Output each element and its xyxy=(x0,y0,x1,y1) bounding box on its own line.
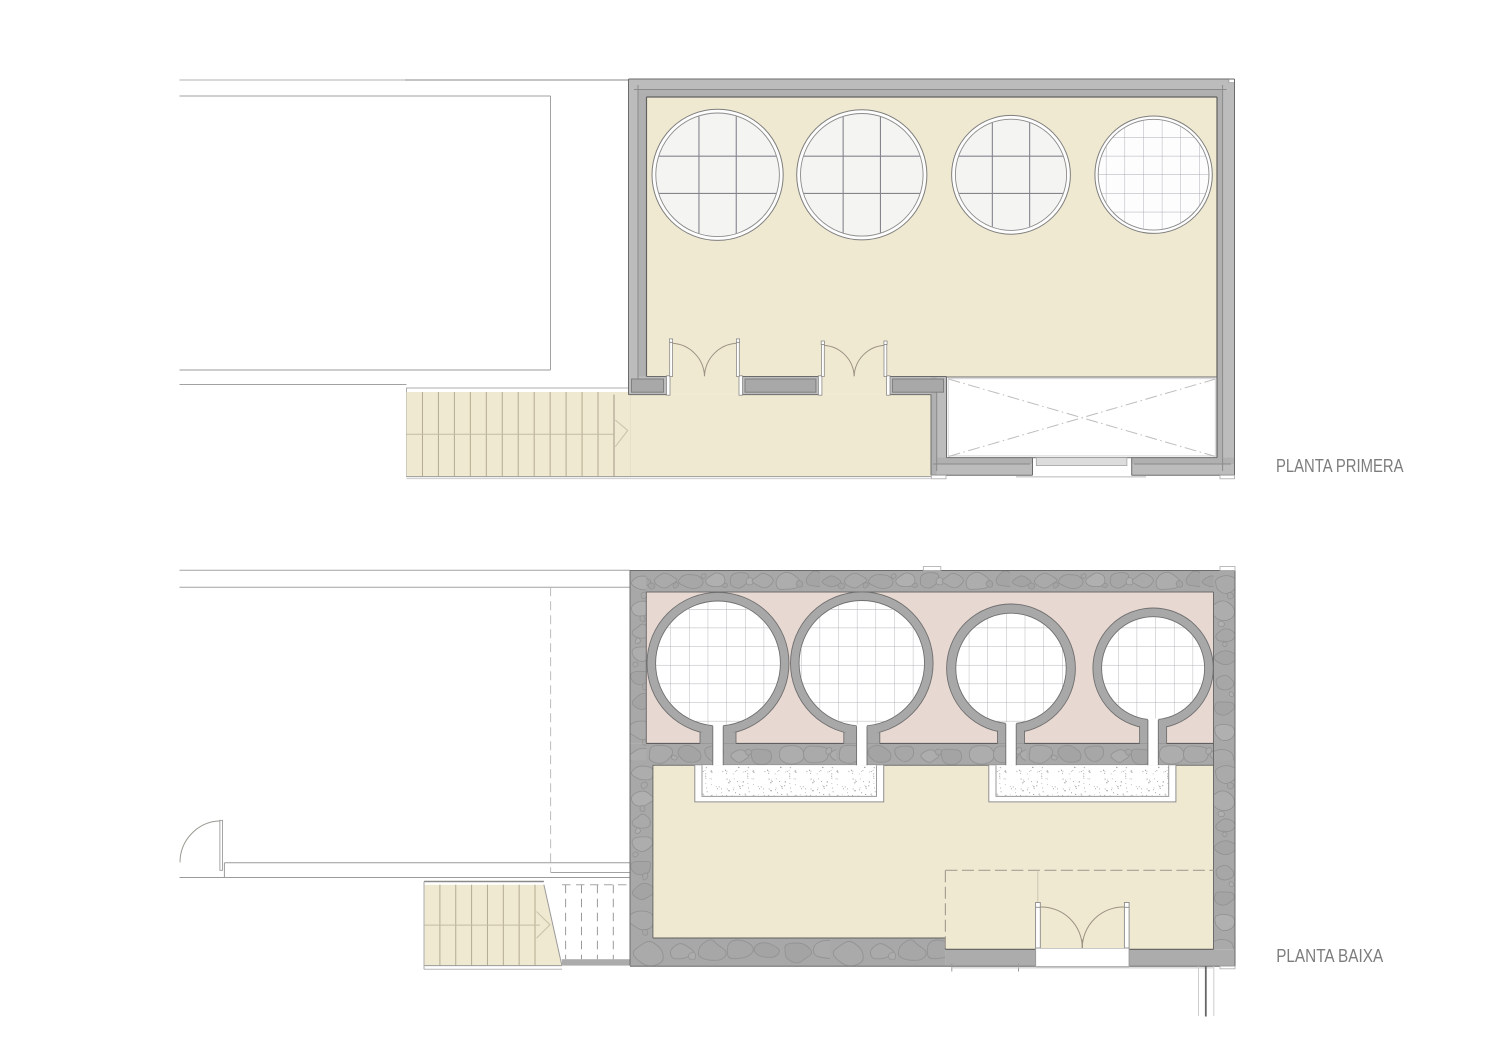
svg-text:PLANTA PRIMERA: PLANTA PRIMERA xyxy=(1276,456,1404,476)
svg-text:PLANTA BAIXA: PLANTA BAIXA xyxy=(1276,946,1384,966)
